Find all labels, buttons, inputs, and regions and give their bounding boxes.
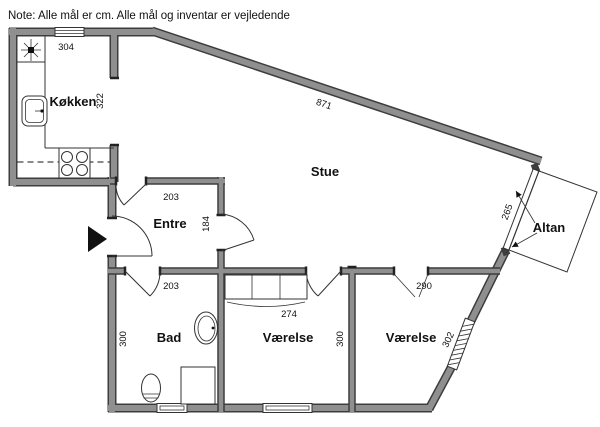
dim-kitchen-depth: 322 — [95, 93, 106, 109]
room-label-kitchen: Køkken — [50, 94, 97, 109]
door-arc-bedroom1 — [306, 271, 341, 296]
dim-balcony-door: 265 — [500, 203, 516, 222]
toilet-fixture — [142, 374, 161, 402]
stove-fixture — [59, 148, 90, 178]
room-label-balcony: Altan — [533, 220, 566, 235]
door-arc-hall-living — [221, 214, 254, 251]
dim-bedroom1-depth: 300 — [335, 331, 346, 347]
floor-plan: Note: Alle mål er cm. Alle mål og invent… — [0, 0, 600, 427]
kitchen-sink-fixture — [22, 96, 47, 126]
window-bedroom1-bottom — [263, 404, 312, 413]
bath-sink-fixture — [195, 312, 218, 344]
door-arc-hall-closet — [116, 184, 146, 205]
room-label-bath: Bad — [157, 330, 182, 345]
room-label-living: Stue — [311, 164, 339, 179]
window-kitchen-top — [55, 28, 84, 37]
window-bath-bottom — [157, 404, 187, 413]
dim-north-wall: 871 — [315, 97, 333, 112]
shower-fixture — [181, 367, 215, 404]
vent-star-icon — [21, 39, 41, 61]
dim-bedroom2-opening: 290 — [416, 281, 432, 292]
dim-top-wall: 304 — [58, 42, 74, 53]
entrance-arrow-icon — [88, 226, 107, 252]
room-label-bedroom1: Værelse — [263, 330, 314, 345]
dim-wardrobe-width: 274 — [281, 309, 297, 320]
door-arc-entrance — [112, 216, 152, 256]
note-text: Note: Alle mål er cm. Alle mål og invent… — [8, 10, 290, 22]
room-label-bedroom2: Værelse — [386, 330, 437, 345]
room-label-hall: Entre — [153, 216, 186, 231]
dim-bath-depth: 300 — [118, 331, 129, 347]
wardrobe-fixture — [225, 275, 307, 307]
dim-hall-depth: 184 — [201, 216, 212, 232]
dim-hall-width: 203 — [163, 192, 179, 203]
dim-bath-width: 203 — [163, 281, 179, 292]
door-arc-bath — [125, 271, 160, 296]
floor-plan-page: Note: Alle mål er cm. Alle mål og invent… — [0, 0, 600, 427]
